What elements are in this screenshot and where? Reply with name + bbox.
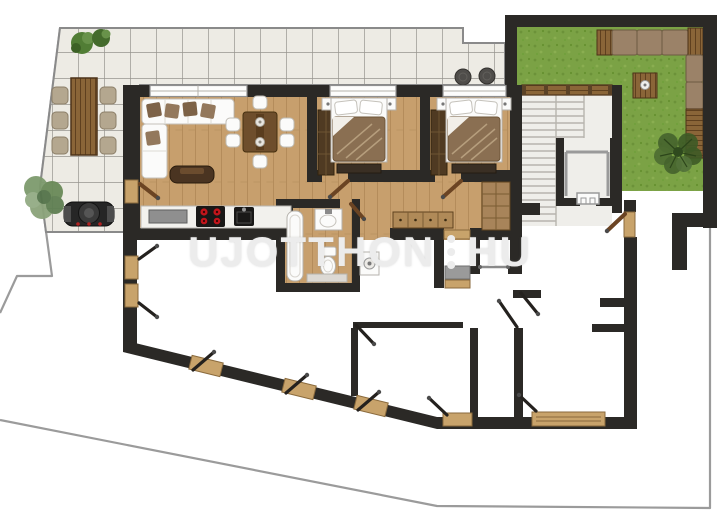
dining-chair — [226, 118, 240, 131]
doormat — [445, 266, 470, 279]
floor-plan: UJOTTHON HU — [0, 0, 720, 510]
window-sill — [125, 284, 138, 307]
bathtub — [287, 211, 303, 281]
throw-pillow — [164, 103, 180, 119]
outdoor-chair — [52, 137, 68, 154]
garden-side-table — [633, 73, 657, 98]
corridor-wardrobe — [482, 182, 510, 230]
entry-doormat — [444, 230, 470, 288]
toilet — [320, 247, 336, 256]
dining-chair — [226, 134, 240, 147]
bedroom-1-window — [330, 86, 396, 97]
living-room-window — [150, 86, 247, 97]
outdoor-chair — [100, 137, 116, 154]
bedroom-2-window — [443, 86, 506, 97]
dining-chair — [280, 118, 294, 131]
door-sill — [125, 180, 138, 203]
floor-plan-drawing — [0, 0, 720, 510]
bath-mat — [307, 274, 347, 282]
door-leaf — [499, 301, 517, 327]
outdoor-chair — [100, 112, 116, 129]
door-leaf — [429, 398, 447, 415]
outdoor-chair — [100, 87, 116, 104]
outdoor-dining-table — [71, 78, 97, 155]
window-sill — [532, 412, 605, 426]
entry-cabinets — [393, 212, 453, 228]
throw-pillow — [146, 102, 162, 118]
window-leaf — [139, 303, 157, 317]
outdoor-chair — [52, 112, 68, 129]
drip-tray — [149, 210, 187, 223]
dining-chair — [280, 134, 294, 147]
throw-pillow — [145, 130, 161, 146]
kitchen-counter — [141, 206, 291, 228]
cooktop — [196, 206, 225, 227]
sliding-door — [478, 265, 510, 269]
dining-chair — [253, 155, 267, 168]
entry-door-sill — [444, 230, 470, 239]
tv-console — [170, 166, 214, 183]
outdoor-dining-set — [52, 78, 116, 155]
dining-chair — [253, 96, 267, 109]
window-sill — [125, 256, 138, 279]
entry-step — [445, 280, 470, 288]
window-leaf — [139, 246, 157, 259]
throw-pillow — [200, 103, 216, 119]
throw-pillow — [182, 101, 197, 116]
outdoor-chair — [52, 87, 68, 104]
elevator-door — [577, 193, 599, 204]
washing-machine — [360, 252, 379, 275]
bedroom-2-furniture — [437, 98, 511, 173]
bbq-grill — [64, 202, 114, 226]
bedroom-1-furniture — [322, 98, 396, 173]
